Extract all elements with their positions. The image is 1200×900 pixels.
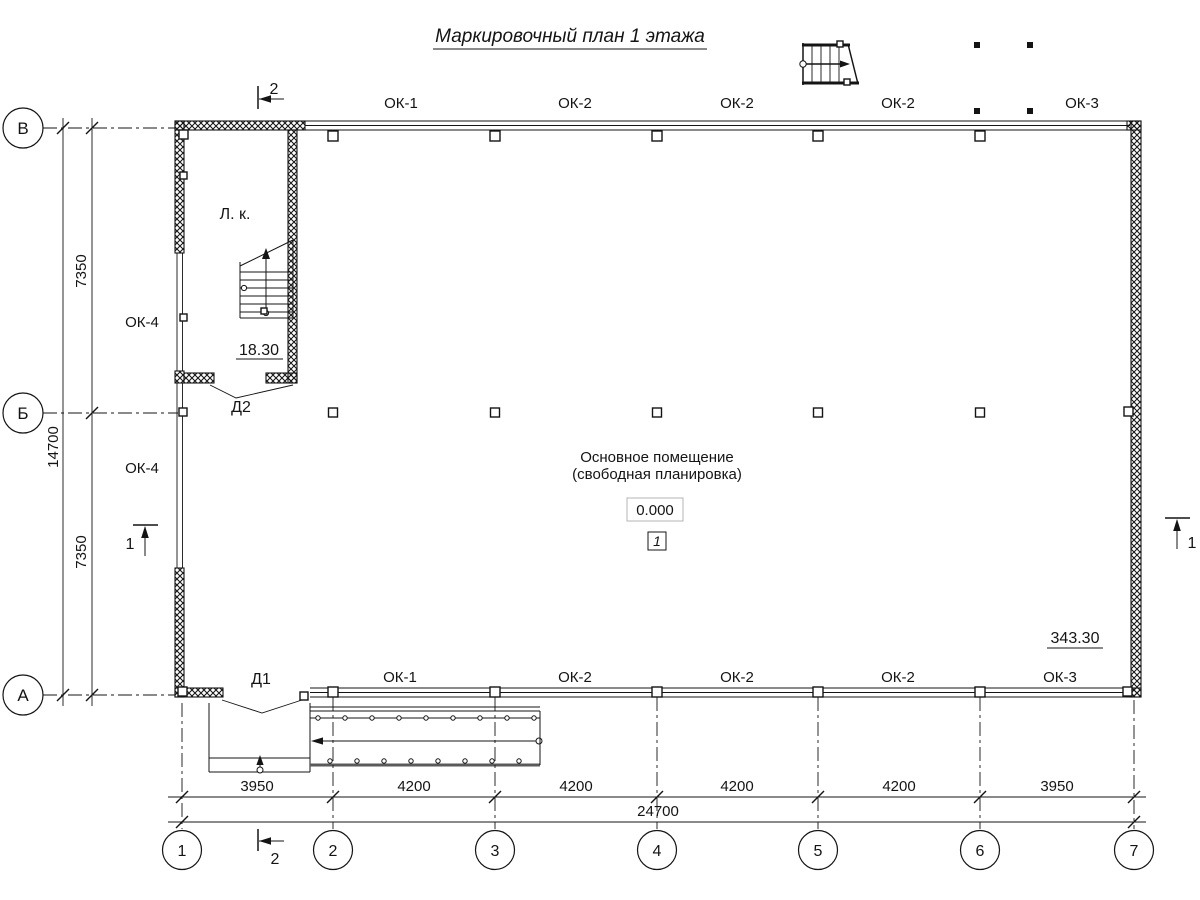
door-d2-label: Д2 (231, 399, 251, 416)
dim-segment: 4200 (397, 778, 430, 795)
section-marker-2-bottom: 2 (258, 829, 284, 868)
room-number: 1 (653, 533, 661, 549)
dim-segment: 3950 (240, 778, 273, 795)
axis-label-v: В (17, 119, 28, 138)
window-labels-top: ОК-1 ОК-2 ОК-2 ОК-2 ОК-3 (384, 95, 1099, 112)
stair-wall-bottom-left (184, 373, 214, 383)
window-label: ОК-2 (881, 95, 915, 112)
window-label: ОК-2 (720, 95, 754, 112)
elevation-value: 0.000 (636, 502, 674, 519)
window-labels-bottom: ОК-1 ОК-2 ОК-2 ОК-2 ОК-3 (383, 669, 1077, 686)
axis-label-b: Б (17, 404, 28, 423)
window-label: ОК-2 (881, 669, 915, 686)
dim-left-upper: 7350 (73, 254, 90, 287)
axis-label-2: 2 (329, 843, 338, 860)
floor-plan-sheet: Маркировочный план 1 этажа В Б А (0, 0, 1200, 900)
axis-label-a: А (17, 686, 29, 705)
axis-label-1: 1 (178, 843, 187, 860)
room-name-line1: Основное помещение (580, 449, 734, 466)
window-labels-left: ОК-4 ОК-4 (125, 314, 159, 477)
section-marker-2-top: 2 (258, 81, 284, 109)
window-label: ОК-4 (125, 314, 159, 331)
section-label-2-bottom: 2 (271, 851, 280, 868)
left-dimensions: 7350 14700 7350 (45, 118, 98, 706)
col-axis-bubbles: 1 2 3 4 5 6 7 (163, 831, 1154, 870)
wall-left-middle (175, 371, 184, 383)
section-label-1-right: 1 (1188, 535, 1197, 552)
stair-enclosure: Д2 Л. к. 18.30 (184, 130, 297, 416)
door-d1-swing (222, 699, 305, 713)
drawing-title: Маркировочный план 1 этажа (433, 26, 707, 49)
window-label: ОК-4 (125, 460, 159, 477)
axis-label-7: 7 (1130, 843, 1139, 860)
axis-label-5: 5 (814, 843, 823, 860)
room-annotation: Основное помещение (свободная планировка… (572, 449, 1103, 648)
wall-top-left-segment (175, 121, 305, 130)
dim-segment: 4200 (559, 778, 592, 795)
column-markers (178, 130, 1133, 700)
dim-segment: 3950 (1040, 778, 1073, 795)
dim-total: 24700 (637, 803, 679, 820)
window-label: ОК-2 (558, 95, 592, 112)
stair-mini-detail (800, 41, 859, 85)
section-label-2-top: 2 (270, 81, 279, 98)
ramp (310, 707, 542, 765)
section-label-1-left: 1 (126, 536, 135, 553)
page-title: Маркировочный план 1 этажа (435, 26, 705, 47)
room-area-value: 343.30 (1051, 630, 1100, 647)
dim-left-total: 14700 (45, 426, 62, 468)
window-label: ОК-1 (383, 669, 417, 686)
window-label: ОК-3 (1065, 95, 1099, 112)
room-name-line2: (свободная планировка) (572, 466, 742, 483)
row-axis-bubbles: В Б А (3, 108, 178, 715)
floor-plan-drawing: Маркировочный план 1 этажа В Б А (0, 0, 1200, 900)
point-marks (974, 42, 1033, 114)
wall-left-lower (175, 568, 184, 697)
dim-segment: 4200 (882, 778, 915, 795)
wall-left-upper (175, 121, 184, 253)
dim-left-lower: 7350 (73, 535, 90, 568)
porch (209, 703, 310, 773)
stair-wall-bottom-right (266, 373, 297, 383)
door-d2-swing (210, 385, 293, 398)
window-label: ОК-3 (1043, 669, 1077, 686)
section-marker-1-right: 1 (1165, 518, 1197, 552)
window-label: ОК-2 (720, 669, 754, 686)
entrance-d1: Д1 (209, 671, 542, 773)
axis-label-6: 6 (976, 843, 985, 860)
window-label: ОК-2 (558, 669, 592, 686)
stair-area-value: 18.30 (239, 342, 279, 359)
window-label: ОК-1 (384, 95, 418, 112)
stair-flight (240, 240, 293, 318)
dim-segment: 4200 (720, 778, 753, 795)
stair-room-label: Л. к. (220, 206, 251, 223)
axis-label-4: 4 (653, 843, 662, 860)
door-d1-label: Д1 (251, 671, 271, 688)
section-marker-1-left: 1 (126, 525, 158, 556)
axis-label-3: 3 (491, 843, 500, 860)
